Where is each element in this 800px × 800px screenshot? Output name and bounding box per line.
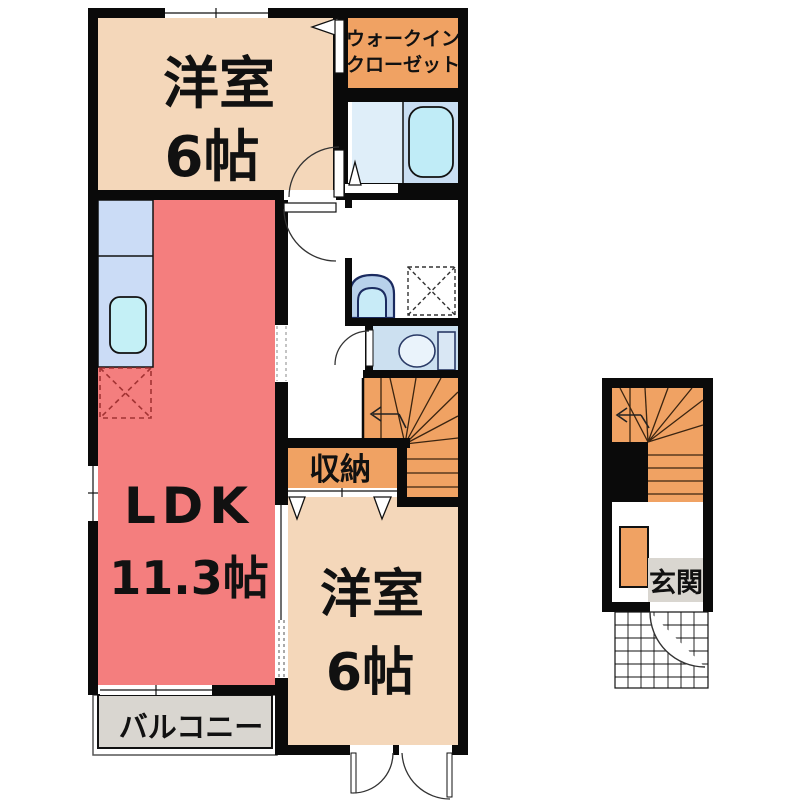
shoe-cabinet-icon — [620, 527, 648, 587]
washbasin-icon — [350, 275, 394, 318]
entrance-structure-1f — [602, 378, 713, 688]
bedroom2-label: 洋室 — [320, 565, 424, 625]
wall-right — [458, 8, 468, 755]
wall-hall-bottom — [275, 438, 410, 448]
storage-label: 収納 — [309, 452, 371, 488]
balcony-label: バルコニー — [119, 710, 263, 744]
wall-toilet-bottom — [363, 370, 468, 378]
kitchen-sink-icon — [110, 297, 146, 353]
floorplan-drawing: 洋室 6帖 ウォークイン クローゼット LDK 11.3帖 収納 洋室 6帖 バ… — [0, 0, 800, 800]
bedroom1-label: 洋室 — [163, 52, 275, 117]
door-bedroom2-south — [350, 745, 452, 799]
door-washroom — [284, 203, 352, 261]
entrance-porch-tiles — [615, 612, 708, 688]
walk-in-closet-area — [345, 13, 460, 90]
stairs-1f-lower — [648, 442, 703, 502]
ldk-label: LDK — [124, 477, 254, 535]
floorplan-canvas: 洋室 6帖 ウォークイン クローゼット LDK 11.3帖 収納 洋室 6帖 バ… — [0, 0, 800, 800]
wall-closet-bottom — [345, 88, 468, 102]
washing-machine-space-icon — [408, 267, 455, 315]
entrance-label: 玄関 — [649, 567, 703, 599]
door-toilet — [335, 330, 373, 366]
toilet-icon — [399, 332, 455, 370]
kitchen-counter — [98, 200, 153, 367]
wall-top — [88, 8, 468, 18]
bathtub-icon — [409, 107, 453, 177]
walk-in-closet-label-line1: ウォークイン — [346, 28, 460, 50]
wall-left — [88, 8, 98, 695]
walk-in-closet-label-line2: クローゼット — [346, 53, 460, 76]
entrance-door-opening — [650, 602, 703, 612]
wall-bedroom2-top — [397, 497, 468, 507]
wall-stairs-divider — [397, 445, 407, 502]
bedroom1-size: 6帖 — [165, 125, 260, 190]
wall-washroom-bottom — [345, 318, 468, 326]
ldk-size: 11.3帖 — [109, 551, 269, 605]
bedroom2-size: 6帖 — [326, 643, 414, 703]
